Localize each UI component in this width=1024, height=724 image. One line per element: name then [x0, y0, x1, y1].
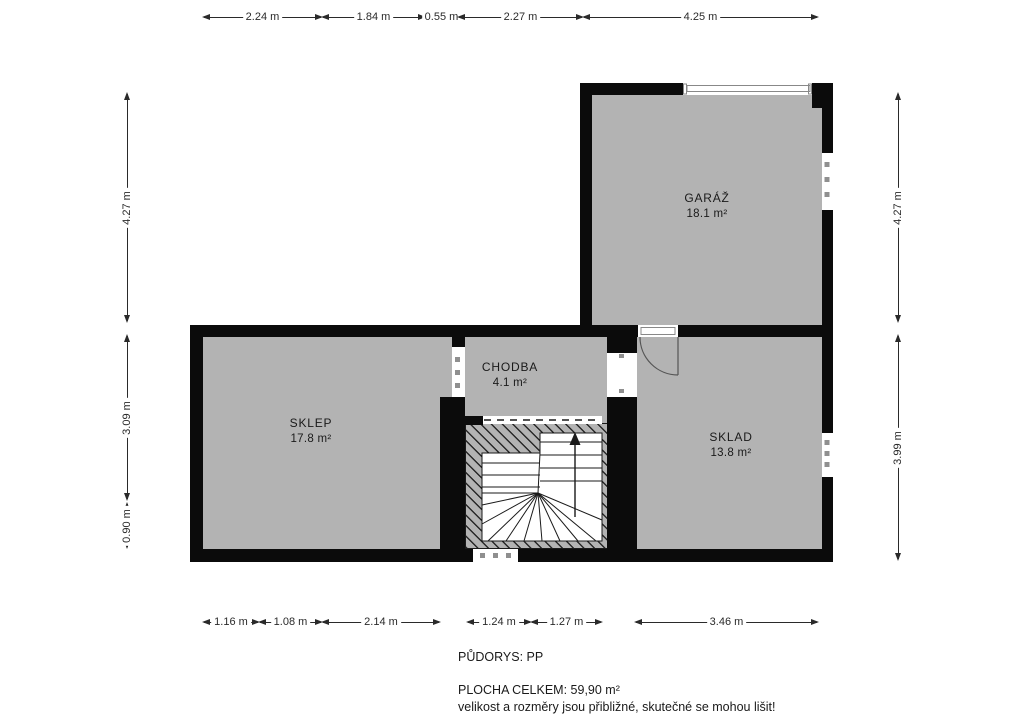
dimension-arrow-icon: [895, 92, 901, 100]
total-area-label: PLOCHA CELKEM: 59,90 m²: [458, 683, 776, 699]
wall-chodba-sklad-upper: [607, 337, 637, 353]
wall-left-outer: [190, 325, 203, 562]
dim-segment-bottom: 2.14 m: [322, 618, 440, 626]
room-label-sklad: SKLAD 13.8 m²: [709, 430, 752, 460]
dim-segment-top: 2.27 m: [458, 13, 583, 21]
room-area: 17.8 m²: [290, 432, 333, 446]
dim-segment-top: 1.84 m: [322, 13, 425, 21]
wall-sklep-stairs: [440, 397, 465, 549]
garage-sklad-door-opening: [638, 325, 678, 337]
room-area: 13.8 m²: [709, 446, 752, 460]
dimension-label: 4.25 m: [681, 11, 721, 23]
dim-segment-bottom: 1.27 m: [531, 618, 602, 626]
dim-segment-left: 4.27 m: [123, 93, 131, 322]
dimension-arrow-icon: [811, 14, 819, 20]
dimension-label: 1.27 m: [547, 616, 587, 628]
dimension-arrow-icon: [466, 619, 474, 625]
room-name: GARÁŽ: [684, 191, 729, 206]
disclaimer-text: velikost a rozměry jsou přibližné, skute…: [458, 700, 776, 716]
dim-segment-left: 0.90 m: [123, 503, 131, 548]
wall-sklep-chodba-stub: [452, 337, 465, 347]
dimension-label: 4.27 m: [892, 188, 904, 228]
room-label-garaz: GARÁŽ 18.1 m²: [684, 191, 729, 221]
dimension-arrow-icon: [811, 619, 819, 625]
dimension-arrow-icon: [582, 14, 590, 20]
dimension-arrow-icon: [202, 14, 210, 20]
wall-stairs-sklad: [607, 397, 637, 549]
dimension-arrow-icon: [433, 619, 441, 625]
dimension-arrow-icon: [895, 315, 901, 323]
wall-top-lower-block-right: [678, 325, 822, 337]
garage-door-opening: [683, 83, 812, 95]
staircase-hatch-zone: [465, 423, 608, 549]
wall-top-lower-block-left: [190, 325, 638, 337]
dimension-label: 3.09 m: [121, 398, 133, 438]
dimension-label: 2.27 m: [501, 11, 541, 23]
wall-right-upper: [822, 95, 833, 153]
dimension-arrow-icon: [321, 619, 329, 625]
floor-plan-canvas: GARÁŽ 18.1 m² SKLEP 17.8 m² CHODBA 4.1 m…: [0, 0, 1024, 724]
dimension-label: 1.16 m: [211, 616, 251, 628]
sklad-window: [822, 433, 833, 477]
sklep-chodba-door-opening: [452, 347, 465, 397]
room-area: 18.1 m²: [684, 207, 729, 221]
dim-segment-right: 4.27 m: [894, 93, 902, 322]
dim-segment-bottom: 1.24 m: [467, 618, 531, 626]
dimension-arrow-icon: [895, 334, 901, 342]
room-area: 4.1 m²: [482, 376, 538, 390]
dim-segment-bottom: 1.08 m: [259, 618, 322, 626]
wall-garage-left: [580, 95, 592, 325]
dimension-label: 4.27 m: [121, 188, 133, 228]
wall-bottom-left: [190, 549, 473, 562]
plan-footer: PŮDORYS: PP PLOCHA CELKEM: 59,90 m² veli…: [458, 650, 776, 716]
dim-segment-top: 2.24 m: [203, 13, 322, 21]
dimension-label: 3.46 m: [707, 616, 747, 628]
dimension-label: 2.14 m: [361, 616, 401, 628]
dim-segment-top: 4.25 m: [583, 13, 818, 21]
dimension-arrow-icon: [258, 619, 266, 625]
stairs-window: [473, 550, 518, 562]
dimension-label: 1.24 m: [479, 616, 519, 628]
dim-segment-left: 3.09 m: [123, 335, 131, 500]
dimension-arrow-icon: [124, 92, 130, 100]
dimension-arrow-icon: [124, 315, 130, 323]
dimension-arrow-icon: [124, 493, 130, 501]
dim-segment-top: 0.55 m: [425, 13, 458, 21]
chodba-sklad-door-opening: [607, 353, 637, 397]
dim-segment-bottom: 3.46 m: [635, 618, 818, 626]
garage-window: [822, 153, 833, 210]
wall-right-middle: [822, 210, 833, 433]
room-name: CHODBA: [482, 360, 538, 375]
floor-label: PŮDORYS: PP: [458, 650, 776, 666]
dimension-arrow-icon: [457, 14, 465, 20]
wall-bottom-right: [518, 549, 833, 562]
room-name: SKLAD: [709, 430, 752, 445]
dim-segment-bottom: 1.16 m: [203, 618, 259, 626]
room-label-chodba: CHODBA 4.1 m²: [482, 360, 538, 390]
dimension-label: 3.99 m: [892, 428, 904, 468]
dimension-label: 1.08 m: [271, 616, 311, 628]
dim-segment-right: 3.99 m: [894, 335, 902, 560]
dimension-label: 1.84 m: [354, 11, 394, 23]
dimension-arrow-icon: [595, 619, 603, 625]
dimension-label: 2.24 m: [243, 11, 283, 23]
dimension-label: 0.55 m: [422, 11, 462, 23]
wall-stairs-opening-bar: [465, 416, 483, 425]
room-name: SKLEP: [290, 416, 333, 431]
dimension-arrow-icon: [634, 619, 642, 625]
dimension-arrow-icon: [202, 619, 210, 625]
dimension-label: 0.90 m: [121, 506, 133, 546]
dimension-arrow-icon: [530, 619, 538, 625]
dimension-arrow-icon: [895, 553, 901, 561]
dimension-arrow-icon: [124, 334, 130, 342]
dimension-arrow-icon: [321, 14, 329, 20]
wall-garage-top-left: [580, 83, 683, 95]
room-label-sklep: SKLEP 17.8 m²: [290, 416, 333, 446]
